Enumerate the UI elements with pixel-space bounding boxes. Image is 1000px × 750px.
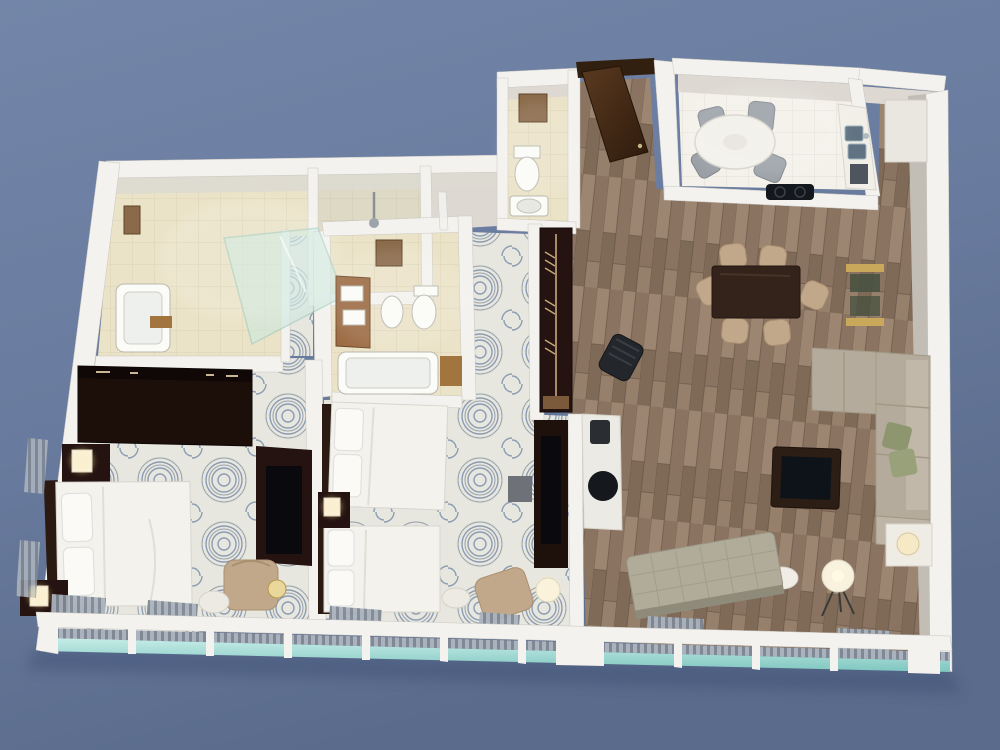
pillow: [333, 454, 362, 497]
round-ottoman: [199, 591, 229, 613]
dining-chair: [763, 319, 791, 347]
mullion: [440, 636, 448, 662]
dining-chair: [721, 317, 749, 345]
lamp-glow: [322, 497, 342, 517]
master-tv: [266, 466, 302, 554]
bed-b: [324, 526, 440, 612]
console-top: [846, 264, 884, 272]
coffee-machine: [590, 420, 610, 444]
powder-glow: [499, 102, 575, 198]
lamp-glow: [897, 533, 919, 555]
kitchen-faucet: [863, 133, 869, 139]
master-bath-art: [124, 206, 140, 234]
bath2-glow: [325, 250, 465, 350]
shower-head: [369, 218, 379, 228]
left-wall-window-blind: [24, 438, 48, 494]
lamp-glow: [28, 585, 50, 607]
tall-cabinet: [885, 100, 927, 162]
side-cube-table: [508, 476, 532, 502]
mullion: [40, 626, 58, 652]
sink-basin-2: [848, 144, 866, 159]
cooktop: [766, 184, 814, 200]
mullion: [128, 628, 136, 654]
lamp-glow: [536, 578, 560, 602]
round-stool: [442, 588, 470, 608]
guest-bathtub-basin: [346, 358, 430, 388]
lamp-glow: [825, 563, 851, 589]
wall-bedroom2-right: [568, 414, 584, 642]
pillow: [328, 570, 354, 606]
mullion: [752, 645, 760, 670]
guest-bath-mat: [440, 356, 462, 386]
powder-sink-basin: [517, 199, 541, 213]
bedroom2-corridor-floor: [468, 232, 532, 418]
mullion: [284, 632, 292, 658]
door-handle: [638, 144, 642, 148]
sink-basin-1: [845, 126, 863, 141]
window-pier: [556, 640, 604, 666]
pillow: [61, 493, 93, 542]
mullion: [830, 647, 838, 671]
wardrobe-shelf: [543, 396, 569, 409]
mullion: [908, 649, 940, 674]
coffee-table-glass: [780, 456, 831, 500]
closet-area: [540, 228, 572, 412]
tv-on-console: [588, 471, 618, 501]
kitchen-glow: [685, 85, 845, 175]
pillow: [334, 408, 363, 451]
kitchen-appliance: [850, 164, 868, 184]
wall-alcove-stub: [438, 192, 448, 230]
coffee-table: [771, 447, 841, 509]
tub-caddy: [150, 316, 172, 328]
mullion: [206, 630, 214, 656]
mullion: [518, 639, 526, 664]
pillow: [328, 530, 354, 566]
bedroom2-tv: [541, 436, 561, 544]
floor-plan-render: [0, 0, 1000, 750]
mullion: [674, 643, 682, 668]
console-glass-shelf: [850, 296, 880, 316]
throw-pillow: [888, 448, 918, 478]
gold-table-lamp: [268, 580, 286, 598]
bath-glow: [160, 200, 340, 320]
floor-plan-stage: [0, 0, 1000, 750]
lamp-glow: [70, 449, 94, 473]
mullion: [362, 634, 370, 660]
console-glass-shelf: [850, 274, 880, 292]
console-bottom: [846, 318, 884, 326]
